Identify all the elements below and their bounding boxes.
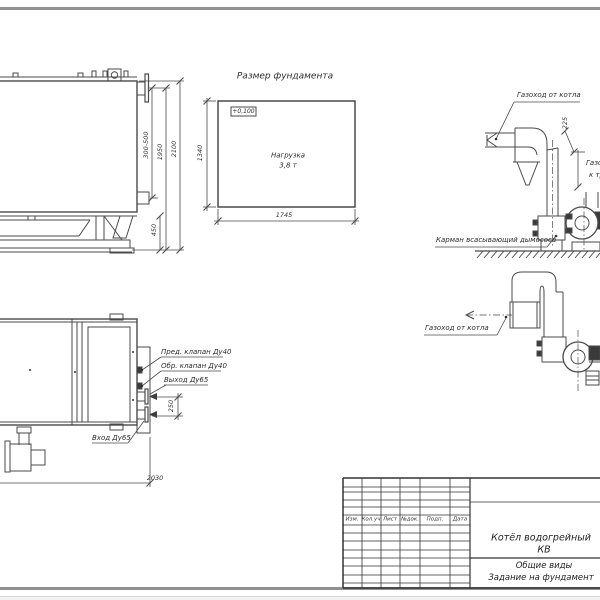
foundation-load-line2: 3,8 т bbox=[279, 163, 296, 170]
label-inlet-nozzle: Вход Ду65 bbox=[92, 435, 131, 442]
titleblock-col-izm: Изм. bbox=[346, 517, 359, 523]
dim-duct-offset: 225 bbox=[562, 117, 569, 129]
label-duct-to-stack-line2: к трубе bbox=[589, 172, 600, 179]
dim-base-height: 450 bbox=[151, 224, 158, 236]
titleblock-doc-line1: Общие виды bbox=[516, 562, 573, 571]
dim-foundation-width: 1745 bbox=[276, 212, 293, 219]
duct-side-view-linework bbox=[435, 102, 600, 251]
foundation-load-line1: Нагрузка bbox=[271, 153, 305, 160]
label-duct-to-stack-line1: Газоход bbox=[586, 160, 600, 167]
foundation-elevation-mark: +0,100 bbox=[232, 109, 254, 115]
label-suction-pocket: Карман всасывающий дымососа bbox=[436, 237, 556, 244]
dim-foundation-depth: 1340 bbox=[197, 145, 204, 162]
titleblock-product-line2: КВ bbox=[537, 545, 550, 555]
titleblock-doc-line2: Задание на фундамент bbox=[488, 574, 593, 583]
label-outlet-nozzle: Выход Ду65 bbox=[164, 377, 208, 384]
foundation-title: Размер фундамента bbox=[237, 73, 333, 82]
titleblock-col-podp: Подп. bbox=[427, 517, 444, 523]
label-duct-inlet-top: Газоход от котла bbox=[517, 92, 581, 99]
label-check-valve: Обр. клапан Ду40 bbox=[161, 363, 227, 370]
ground-hatch bbox=[475, 251, 600, 258]
drawing-linework bbox=[0, 0, 600, 600]
dim-nozzle-spacing: 250 bbox=[168, 400, 175, 412]
dim-height-total: 2100 bbox=[171, 141, 178, 158]
dim-stub-range: 300-500 bbox=[143, 131, 150, 158]
titleblock-col-koluch: Кол.уч bbox=[361, 517, 380, 523]
titleblock-product-line1: Котёл водогрейный bbox=[491, 533, 591, 543]
label-safety-valve: Пред. клапан Ду40 bbox=[161, 349, 231, 356]
titleblock-col-data: Дата bbox=[453, 517, 467, 523]
plan-view-linework bbox=[0, 314, 223, 487]
label-duct-inlet-front: Газоход от котла bbox=[425, 325, 489, 332]
titleblock-col-list: Лист bbox=[383, 517, 397, 523]
titleblock-col-ndok: №док. bbox=[401, 517, 419, 523]
duct-front-view-linework bbox=[424, 272, 600, 392]
drawing-sheet: { "colors": { "line": "#4a4a4a", "sheet_… bbox=[0, 0, 600, 600]
dim-boiler-length: 2030 bbox=[147, 475, 164, 482]
dim-height-flange: 1950 bbox=[157, 144, 164, 161]
